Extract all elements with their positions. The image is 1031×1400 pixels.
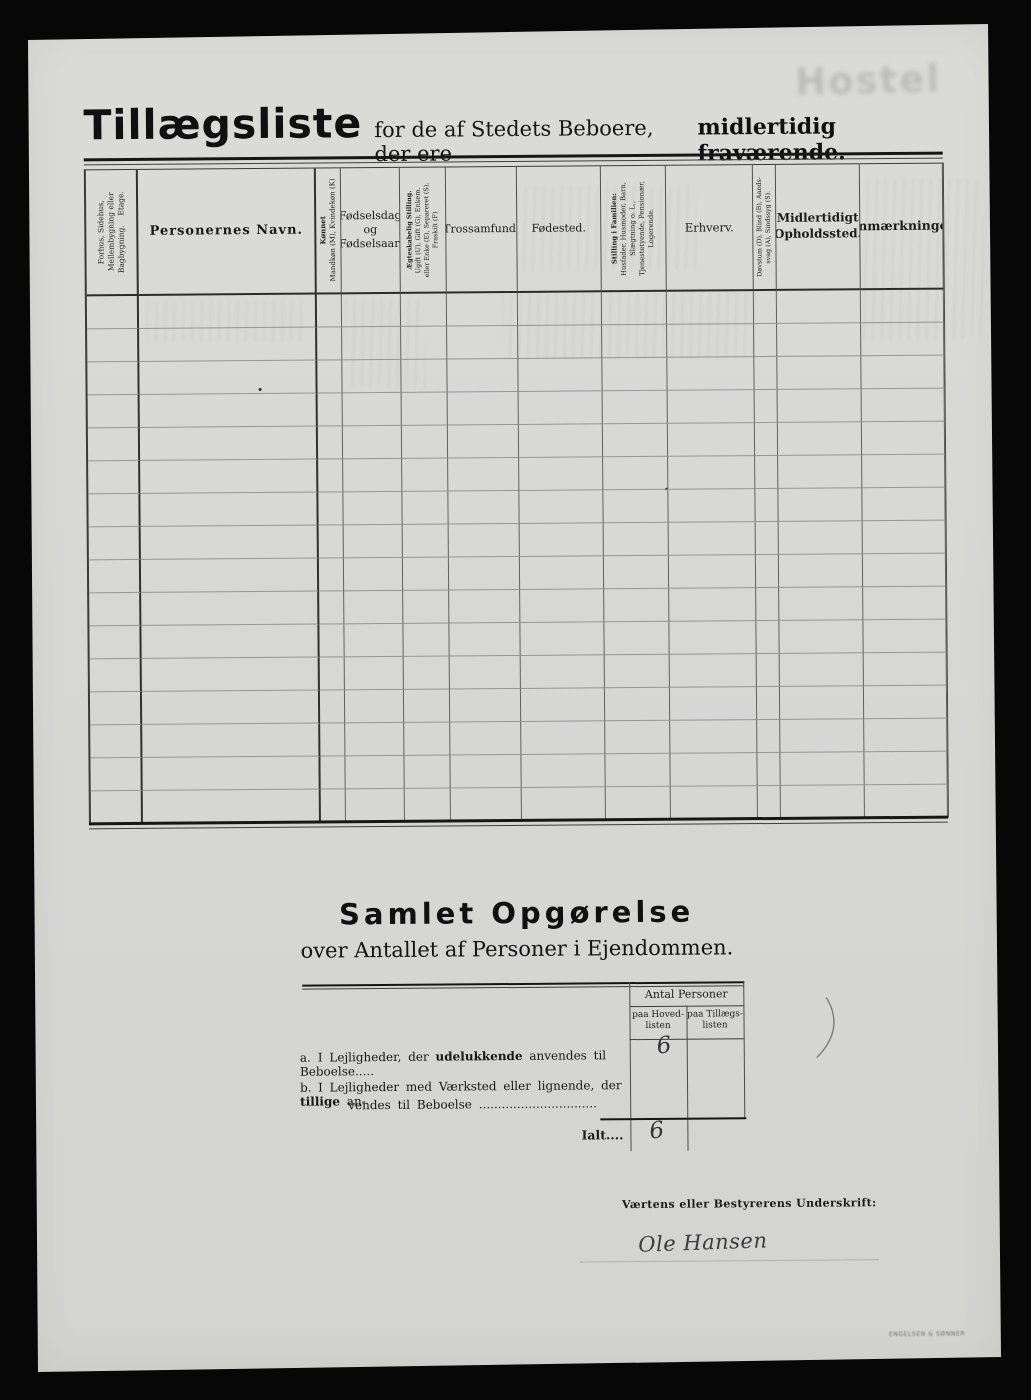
table-cell (606, 787, 671, 821)
table-cell (756, 555, 779, 588)
table-cell (754, 291, 777, 324)
table-cell (671, 786, 758, 820)
scanned-census-form: Hostel Tillægsliste for de af Stedets Be… (0, 0, 1031, 1400)
table-cell (319, 591, 344, 624)
table-cell (670, 753, 757, 787)
bleed-through-smudge (858, 178, 984, 339)
table-cell (522, 787, 606, 821)
table-cell (88, 428, 140, 461)
table-cell (668, 390, 755, 424)
table-cell (88, 461, 140, 494)
table-cell (668, 423, 755, 457)
table-cell (519, 391, 603, 425)
table-cell (320, 756, 345, 789)
table-cell (862, 455, 945, 489)
table-cell (778, 488, 862, 522)
summary-subheading: over Antallet af Personer i Ejendommen. (272, 935, 762, 963)
table-cell (142, 757, 320, 791)
table-cell (88, 494, 140, 527)
table-cell (87, 296, 139, 329)
table-cell (521, 754, 605, 788)
table-cell (605, 655, 670, 689)
table-cell (754, 357, 777, 390)
table-cell (87, 362, 139, 395)
table-cell (142, 724, 320, 758)
table-cell (88, 395, 140, 428)
table-cell (519, 490, 603, 524)
handwritten-signature: Ole Hansen (638, 1228, 768, 1256)
table-cell (345, 690, 404, 723)
table-cell (403, 558, 449, 591)
table-cell (604, 556, 669, 590)
table-cell (317, 327, 342, 360)
row-b-prefix: b. (300, 1081, 318, 1095)
title-main: Tillægsliste (83, 99, 362, 149)
table-cell (780, 719, 864, 753)
table-cell (669, 522, 756, 556)
column-header-5: Ægteskabelig Stilling. Ugift (U), Gift (… (400, 168, 447, 294)
table-cell (669, 555, 756, 589)
table-cell (87, 329, 139, 362)
table-cell (320, 690, 345, 723)
summary-vline (630, 1121, 631, 1151)
table-cell (404, 723, 450, 756)
summary-vline (687, 1121, 688, 1151)
table-cell (141, 592, 319, 626)
table-cell (89, 593, 141, 626)
table-cell (520, 589, 604, 623)
table-cell (862, 422, 945, 456)
table-cell (604, 523, 669, 557)
ink-speck (665, 488, 667, 490)
table-cell (779, 620, 863, 654)
table-cell (90, 758, 142, 791)
signature-label: Værtens eller Bestyrerens Underskrift: (622, 1196, 877, 1211)
table-cell (863, 521, 946, 555)
table-cell (344, 558, 403, 591)
table-cell (404, 756, 450, 789)
table-cell (318, 459, 343, 492)
table-cell (345, 723, 404, 756)
table-cell (780, 653, 864, 687)
table-cell (603, 457, 668, 491)
table-cell (521, 721, 605, 755)
table-cell (343, 459, 402, 492)
antal-personer-header: Antal Personer (629, 987, 743, 1001)
table-cell (319, 624, 344, 657)
table-cell (777, 290, 861, 324)
table-cell (141, 526, 319, 560)
table-cell (777, 323, 861, 357)
table-cell (778, 455, 862, 489)
stray-pen-mark (802, 993, 847, 1063)
table-cell (402, 426, 448, 459)
printed-content: Hostel Tillægsliste for de af Stedets Be… (0, 0, 1031, 1400)
table-cell (448, 491, 519, 525)
table-cell (521, 655, 605, 689)
table-cell (450, 689, 521, 723)
table-cell (89, 560, 141, 593)
table-cell (779, 587, 863, 621)
table-cell (755, 390, 778, 423)
summary-row-b-line2: vendes til Beboelse ....................… (348, 1096, 638, 1112)
table-cell (757, 720, 780, 753)
table-cell (140, 493, 318, 527)
table-cell (604, 589, 669, 623)
table-cell (779, 554, 863, 588)
summary-heading: Samlet Opgørelse (302, 894, 732, 931)
table-cell (139, 361, 317, 395)
table-cell (318, 492, 343, 525)
column-header-2: Personernes Navn. (138, 169, 317, 296)
table-cell (141, 625, 319, 659)
table-cell (604, 622, 669, 656)
ink-speck (259, 388, 262, 391)
table-cell (404, 657, 450, 690)
column-header-4: Fødselsdag og Fødselsaar. (341, 168, 401, 294)
bleed-through-smudge (147, 302, 307, 343)
table-cell (779, 521, 863, 555)
table-cell (140, 394, 318, 428)
table-cell (781, 785, 865, 819)
column-header-6: Trossamfund. (446, 167, 518, 294)
table-cell (863, 620, 946, 654)
summary-row-a: a.I Lejligheder, der udelukkende anvende… (300, 1048, 630, 1079)
ialt-rule (600, 1117, 746, 1120)
table-cell (518, 358, 602, 392)
table-cell (519, 424, 603, 458)
table-cell (142, 658, 320, 692)
table-cell (318, 426, 343, 459)
table-cell (864, 653, 947, 687)
table-cell (862, 389, 945, 423)
table-cell (519, 457, 603, 491)
table-cell (449, 623, 520, 657)
column-header-11: Midlertidigt Opholdssted. (776, 164, 861, 291)
table-cell (448, 458, 519, 492)
table-cell (344, 591, 403, 624)
table-cell (403, 591, 449, 624)
bleed-through-smudge (516, 185, 697, 272)
table-cell (345, 657, 404, 690)
table-cell (780, 752, 864, 786)
table-cell (142, 691, 320, 725)
bleed-through-smudge (345, 299, 426, 388)
row-a-text: I Lejligheder, der (318, 1050, 436, 1065)
table-cell (758, 786, 781, 819)
row-a-bold-word: udelukkende (435, 1049, 522, 1064)
table-cell (450, 755, 521, 789)
table-cell (91, 791, 143, 824)
table-cell (778, 422, 862, 456)
hovedlisten-column-header: paa Hoved- listen (629, 1010, 686, 1032)
table-cell (603, 424, 668, 458)
table-cell (756, 522, 779, 555)
table-cell (319, 525, 344, 558)
table-cell (344, 525, 403, 558)
handwritten-count-total: 6 (648, 1117, 665, 1144)
table-cell (143, 790, 321, 824)
table-cell (451, 788, 522, 822)
row-b-text: I Lejligheder med Værksted eller lignend… (318, 1078, 622, 1094)
table-cell (862, 488, 945, 522)
table-cell (90, 725, 142, 758)
table-cell (863, 587, 946, 621)
table-cell (757, 687, 780, 720)
table-cell (140, 460, 318, 494)
table-cell (863, 554, 946, 588)
table-cell (346, 789, 405, 822)
row-a-prefix: a. (300, 1051, 318, 1065)
table-cell (320, 657, 345, 690)
table-cell (668, 456, 755, 490)
table-cell (448, 392, 519, 426)
table-cell (777, 356, 861, 390)
table-cell (90, 659, 142, 692)
table-cell (89, 626, 141, 659)
table-cell (754, 324, 777, 357)
table-cell (668, 489, 755, 523)
table-cell (520, 622, 604, 656)
table-cell (757, 753, 780, 786)
table-cell (669, 621, 756, 655)
table-cell (861, 356, 944, 390)
summary-vline (743, 981, 745, 1118)
table-cell (343, 393, 402, 426)
column-header-1: Forhus, Sidehus, Mellembygning eller Bag… (86, 170, 139, 296)
printer-mark: Engelsen & Sønner (887, 1330, 967, 1338)
table-cell (521, 688, 605, 722)
table-cell (520, 556, 604, 590)
table-cell (447, 359, 518, 393)
column-header-3: Kønnet Mandkøn (M), Kvindekøn (K) (316, 168, 342, 294)
table-cell (755, 423, 778, 456)
table-cell (448, 425, 519, 459)
handwritten-count-a: 6 (655, 1032, 672, 1059)
table-cell (780, 686, 864, 720)
table-cell (449, 524, 520, 558)
table-cell (605, 754, 670, 788)
ialt-label: Ialt.... (559, 1127, 623, 1143)
table-cell (402, 393, 448, 426)
table-cell (90, 692, 142, 725)
table-cell (520, 523, 604, 557)
table-cell (318, 393, 343, 426)
table-cell (605, 721, 670, 755)
table-cell (321, 789, 346, 822)
table-cell (89, 527, 141, 560)
table-cell (403, 525, 449, 558)
table-cell (402, 492, 448, 525)
table-cell (755, 489, 778, 522)
table-cell (605, 688, 670, 722)
column-header-10: Døvstum (D), Blind (B), Aands- svag (A),… (753, 165, 777, 291)
table-cell (756, 621, 779, 654)
table-cell (450, 656, 521, 690)
table-cell (670, 687, 757, 721)
table-cell (317, 294, 342, 327)
tillaegslisten-column-header: paa Tillægs- listen (686, 1009, 743, 1031)
table-cell (319, 558, 344, 591)
table-cell (320, 723, 345, 756)
table-cell (670, 654, 757, 688)
table-cell (141, 559, 319, 593)
table-cell (140, 427, 318, 461)
table-cell (449, 557, 520, 591)
table-cell (864, 719, 947, 753)
table-cell (403, 624, 449, 657)
table-cell (450, 722, 521, 756)
table-cell (603, 490, 668, 524)
table-cell (449, 590, 520, 624)
table-cell (317, 360, 342, 393)
table-cell (603, 391, 668, 425)
table-cell (778, 389, 862, 423)
table-cell (667, 357, 754, 391)
table-cell (402, 459, 448, 492)
table-cell (343, 426, 402, 459)
table-cell (405, 789, 451, 822)
table-cell (345, 756, 404, 789)
table-cell (602, 358, 667, 392)
table-cell (343, 492, 402, 525)
table-cell (404, 690, 450, 723)
bleed-through-smudge (502, 292, 758, 360)
table-cell (670, 720, 757, 754)
table-cell (756, 588, 779, 621)
table-cell (864, 686, 947, 720)
table-cell (669, 588, 756, 622)
table-cell (864, 752, 947, 786)
row-b-bold-word: tillige (300, 1094, 340, 1108)
table-cell (865, 785, 948, 819)
table-cell (344, 624, 403, 657)
table-cell (755, 456, 778, 489)
table-cell (757, 654, 780, 687)
